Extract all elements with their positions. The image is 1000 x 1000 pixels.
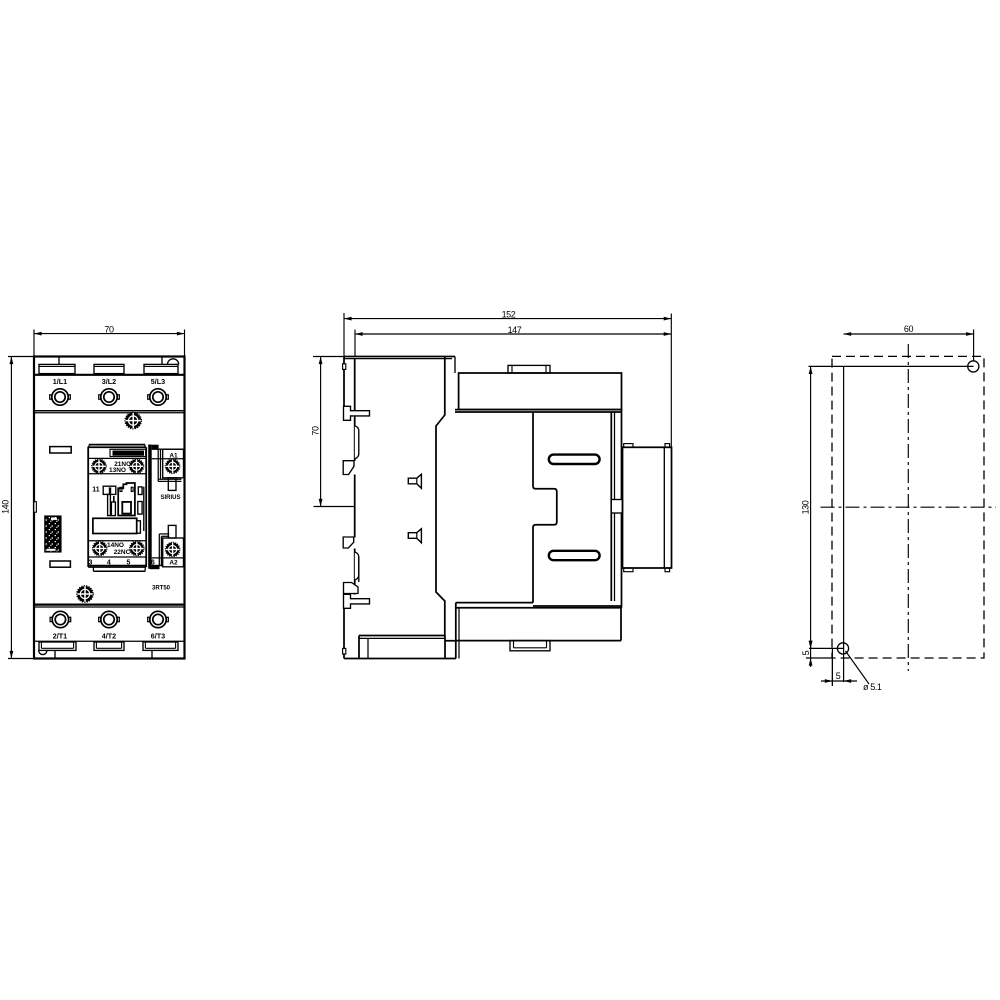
svg-text:70: 70 (104, 324, 114, 334)
svg-text:140: 140 (1, 500, 11, 514)
svg-text:60: 60 (904, 324, 914, 334)
svg-text:13NO: 13NO (109, 467, 126, 474)
svg-text:3: 3 (89, 560, 93, 567)
svg-text:3/L2: 3/L2 (102, 377, 116, 386)
svg-text:SIRIUS: SIRIUS (160, 495, 180, 501)
svg-text:A1: A1 (169, 453, 178, 460)
svg-text:4/T2: 4/T2 (102, 632, 116, 641)
svg-text:5: 5 (801, 650, 811, 655)
svg-text:5/L3: 5/L3 (151, 377, 165, 386)
svg-text:5: 5 (126, 560, 130, 567)
svg-text:70: 70 (311, 426, 321, 436)
svg-text:2/T1: 2/T1 (53, 632, 67, 641)
svg-text:6/T3: 6/T3 (151, 632, 165, 641)
svg-text:14NO: 14NO (107, 542, 124, 549)
svg-text:5: 5 (836, 671, 841, 681)
svg-text:A2: A2 (169, 560, 178, 567)
svg-text:4: 4 (107, 560, 111, 567)
svg-text:147: 147 (508, 325, 522, 335)
svg-text:22NC: 22NC (114, 549, 131, 556)
svg-text:1/L1: 1/L1 (53, 377, 67, 386)
svg-text:3RT50: 3RT50 (152, 586, 171, 592)
svg-text:130: 130 (801, 500, 811, 514)
svg-text:11: 11 (92, 487, 100, 494)
svg-text:152: 152 (502, 309, 516, 319)
svg-text:ø 5.1: ø 5.1 (863, 682, 882, 692)
